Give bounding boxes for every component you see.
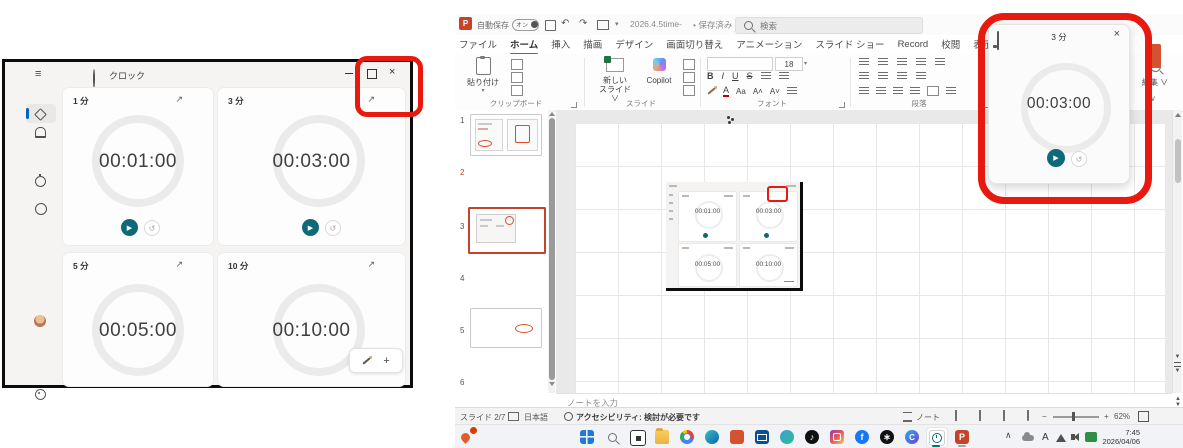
mini-sidebar-mark <box>669 202 673 204</box>
mini-card-label <box>682 195 689 197</box>
timer-time: 00:01:00 <box>63 151 213 173</box>
thumb-line <box>480 225 488 227</box>
timer-card-1min[interactable]: 1 分 ↗ 00:01:00 ▶ ↺ <box>62 87 214 246</box>
save-icon[interactable] <box>545 20 556 31</box>
add-table-button[interactable] <box>927 86 939 96</box>
mini-timer-time: 00:03:00 <box>740 208 797 215</box>
clock-app-taskbar-icon[interactable] <box>929 430 945 446</box>
app-icon[interactable] <box>780 430 794 444</box>
canvas-scroll-up-arrow[interactable] <box>1175 113 1181 117</box>
tray-show-hidden-icon[interactable]: ∧ <box>1005 430 1012 441</box>
maximize-button[interactable] <box>367 69 377 79</box>
thumb2-mini-window <box>476 214 516 243</box>
edit-timers-button[interactable] <box>363 357 371 364</box>
bullets-button[interactable] <box>859 58 869 66</box>
slide-indicator[interactable]: スライド 2/7 <box>460 412 505 423</box>
justify-button[interactable] <box>910 87 920 95</box>
mini-card-icons <box>724 247 733 249</box>
mini-ring <box>695 201 723 229</box>
thumb1-image-right <box>507 119 538 151</box>
task-view-icon[interactable] <box>630 430 646 446</box>
canva-glyph: C <box>909 433 915 442</box>
section-button[interactable] <box>683 85 695 96</box>
new-slide-label-top: 新しい <box>595 76 635 85</box>
timer-edit-bar: + <box>349 348 403 373</box>
font-size-box[interactable]: 18 <box>775 57 803 71</box>
powerpoint-glyph: P <box>959 432 965 442</box>
display-settings-icon[interactable] <box>508 412 519 421</box>
clear-formatting-button[interactable] <box>787 87 797 95</box>
mini-edit-bar <box>784 281 794 283</box>
onedrive-cloud-icon[interactable] <box>1022 435 1034 441</box>
taskbar-search-icon[interactable] <box>605 430 619 444</box>
search-icon <box>744 21 753 30</box>
view-reading-button[interactable] <box>1003 410 1005 421</box>
alarm-nav-icon[interactable] <box>35 127 46 138</box>
reset-timer-button[interactable]: ↺ <box>325 220 341 236</box>
start-timer-button[interactable]: ▶ <box>302 219 319 236</box>
paste-button[interactable]: 貼り付け ▾ <box>463 57 503 97</box>
columns-button[interactable] <box>859 72 869 80</box>
start-button[interactable] <box>580 430 594 444</box>
edge-icon[interactable] <box>705 430 719 444</box>
tiktok-icon[interactable]: ♪ <box>805 430 819 444</box>
tray-time: 7:45 <box>1100 428 1140 437</box>
nav-menu-icon[interactable]: ≡ <box>35 68 41 80</box>
powerpoint-logo-icon: P <box>459 17 472 30</box>
zoom-slider-thumb[interactable] <box>1072 412 1075 421</box>
thumbnail-scrollbar-thumb[interactable] <box>549 118 555 380</box>
scroll-down-arrow[interactable] <box>549 382 555 386</box>
group-label-font: フォント <box>701 98 843 109</box>
timer-time: 00:03:00 <box>218 151 405 173</box>
slide-number-6: 6 <box>460 378 464 387</box>
align-left-button[interactable] <box>859 87 869 95</box>
pip-close-button[interactable]: × <box>1114 28 1120 40</box>
tray-clock[interactable]: 7:45 2026/04/06 <box>1100 428 1140 446</box>
paste-label: 貼り付け <box>463 78 503 87</box>
mini-timer-time: 00:10:00 <box>740 261 797 268</box>
indent-decrease-button[interactable] <box>897 58 907 66</box>
pip-timer-time: 00:03:00 <box>989 95 1129 113</box>
timer-label: 5 分 <box>73 260 89 272</box>
zoom-in-button[interactable]: + <box>1104 412 1109 421</box>
mini-ring <box>756 201 784 229</box>
copilot-label: Copilot <box>641 76 677 85</box>
mini-titlebar-mark <box>669 185 677 187</box>
indent-increase-button[interactable] <box>916 58 926 66</box>
wifi-icon[interactable] <box>1056 434 1066 442</box>
slide-thumbnail-3[interactable] <box>470 308 542 348</box>
font-size-value: 18 <box>785 60 794 69</box>
mini-timer-card-3: 00:05:00 <box>678 243 737 287</box>
clock-app-window: ≡ クロック × 1 分 ↗ 00:01:00 ▶ ↺ 3 分 ↗ 00:03:… <box>2 59 413 388</box>
align-right-button[interactable] <box>893 87 903 95</box>
grow-font-button[interactable]: A˄ <box>753 87 763 96</box>
tab-home-label: ホーム <box>510 40 538 51</box>
tab-draw[interactable]: 描画 <box>583 37 602 51</box>
view-slide-sorter-button[interactable] <box>979 410 981 421</box>
reset-timer-button[interactable]: ↺ <box>144 220 160 236</box>
thumbnail-scrollbar[interactable] <box>548 110 555 393</box>
align-text-button[interactable] <box>897 72 907 80</box>
notes-toggle-icon[interactable] <box>903 412 912 422</box>
focus-sessions-nav-icon[interactable] <box>35 203 47 215</box>
timer-label: 3 分 <box>228 95 244 107</box>
cut-button[interactable] <box>511 59 523 70</box>
embedded-clock-screenshot[interactable]: 00:01:00 00:03:00 00:05:00 00:10:00 <box>666 182 803 291</box>
volume-icon[interactable] <box>1071 434 1075 440</box>
font-style-row: B I U S <box>707 71 789 81</box>
mini-card-icons <box>724 195 733 197</box>
mini-ring <box>756 254 784 282</box>
notification-badge <box>470 427 477 434</box>
paste-dropdown-icon: ▾ <box>463 87 503 94</box>
timer-time: 00:10:00 <box>218 320 405 342</box>
pip-timer-label: 3 分 <box>989 31 1129 43</box>
search-box[interactable]: 検索 <box>735 17 923 34</box>
tray-date: 2026/04/06 <box>1100 437 1140 446</box>
thumb-line <box>478 123 492 125</box>
split-handle-icon[interactable] <box>1174 362 1181 367</box>
ime-mode-icon[interactable]: A <box>1042 432 1049 443</box>
search-placeholder: 検索 <box>760 20 777 32</box>
clock-window-title: クロック <box>109 69 145 82</box>
tab-record[interactable]: Record <box>898 39 929 50</box>
mini-ring <box>695 254 723 282</box>
slide-number-1: 1 <box>460 116 464 125</box>
paragraph-row-2 <box>859 72 926 80</box>
chatgpt-glyph: ∗ <box>883 432 891 443</box>
battery-status-icon[interactable] <box>1085 432 1097 442</box>
canvas-scrollbar[interactable]: ▼ ▼ <box>1172 110 1182 393</box>
slide-object-marker-icon <box>727 116 730 119</box>
mini-card-label <box>682 247 689 249</box>
widgets-weather-icon[interactable] <box>461 430 474 443</box>
slide-number-3: 3 <box>460 222 464 231</box>
timer-time: 00:05:00 <box>63 320 213 342</box>
align-center-button[interactable] <box>876 87 886 95</box>
tab-design[interactable]: デザイン <box>615 37 653 51</box>
paste-icon <box>476 57 491 75</box>
notes-pane[interactable]: ノートを入力 <box>556 393 1172 408</box>
thumb-line <box>478 128 488 130</box>
chatgpt-icon[interactable]: ∗ <box>880 430 894 444</box>
slideshow-icon[interactable] <box>597 20 609 30</box>
autosave-toggle-knob <box>531 21 538 28</box>
pin-shape <box>459 431 472 444</box>
thumb-line <box>496 225 504 227</box>
share-button-fragment[interactable] <box>1150 44 1161 68</box>
thumb-line <box>480 219 492 221</box>
copilot-icon <box>653 58 666 71</box>
collapse-ribbon-icon[interactable]: ∨ <box>1150 94 1156 103</box>
slide-thumbnail-1[interactable] <box>470 114 542 156</box>
tiktok-glyph: ♪ <box>810 432 815 442</box>
minimize-button[interactable] <box>345 73 353 74</box>
expand-timer-icon[interactable]: ↗ <box>175 95 183 104</box>
mini-card-label <box>743 195 750 197</box>
ppt-tab-row: ファイル ホーム 挿入 描画 デザイン 画面切り替え アニメーション スライド … <box>459 36 1034 52</box>
mini-timer-time: 00:05:00 <box>679 261 736 268</box>
mini-window-controls-mark <box>786 185 796 187</box>
expand-timer-icon[interactable]: ↗ <box>367 95 375 104</box>
italic-button[interactable]: I <box>722 71 725 81</box>
tab-slideshow[interactable]: スライド ショー <box>815 37 884 51</box>
clock-app-icon <box>93 69 95 88</box>
undo-icon[interactable]: ↶ <box>561 18 569 29</box>
highlight-button[interactable] <box>707 87 715 94</box>
facebook-glyph: f <box>861 432 864 442</box>
timer-card-5min[interactable]: 5 分 ↗ 00:05:00 <box>62 252 214 387</box>
font-size-dropdown-icon[interactable]: ▾ <box>804 60 807 67</box>
instagram-icon[interactable] <box>830 430 844 444</box>
convert-smartart-button[interactable] <box>916 72 926 80</box>
timer-label: 10 分 <box>228 260 248 272</box>
toolbar-dropdown-icon[interactable]: ▾ <box>615 20 619 28</box>
collapse-arrow-icon[interactable]: ▼ <box>1173 354 1182 361</box>
strikethrough-button[interactable]: S <box>747 71 753 81</box>
mini-timer-time: 00:01:00 <box>679 208 736 215</box>
format-painter-button[interactable] <box>511 85 523 96</box>
group-label-clipboard: クリップボード <box>455 98 577 109</box>
tab-review[interactable]: 校閲 <box>941 37 960 51</box>
powerpoint-taskbar-icon[interactable]: P <box>955 430 969 444</box>
font-color-row: A Aa A˄ A˅ <box>707 85 797 97</box>
mini-timer-card-4: 00:10:00 <box>739 243 798 287</box>
mini-play-icon <box>764 233 769 238</box>
paragraph-row-3 <box>859 86 956 96</box>
line-spacing-button[interactable] <box>935 58 945 66</box>
outlook-icon[interactable] <box>730 430 744 444</box>
thumb2-red-circle <box>505 216 514 225</box>
canvas-nav-cluster: ▼ ▼ <box>1173 354 1182 375</box>
new-slide-icon <box>606 58 624 72</box>
view-slideshow-button[interactable] <box>1027 410 1029 421</box>
slide-number-2: 2 <box>460 168 464 177</box>
copilot-button[interactable]: Copilot <box>641 58 677 85</box>
document-title: 2026.4.5time- <box>630 19 682 29</box>
powerpoint-logo-letter: P <box>463 19 468 28</box>
thumb1-red-oval <box>478 140 492 147</box>
text-vertical-button[interactable] <box>946 87 956 95</box>
close-button[interactable]: × <box>389 66 395 78</box>
view-normal-button[interactable] <box>955 410 957 421</box>
zoom-out-button[interactable]: − <box>1042 412 1047 421</box>
slide-number-5: 5 <box>460 326 464 335</box>
group-label-paragraph: 段落 <box>851 98 987 109</box>
scroll-up-arrow[interactable] <box>549 112 555 116</box>
tab-file[interactable]: ファイル <box>459 37 497 51</box>
accessibility-status[interactable]: アクセシビリティ: 検討が必要です <box>576 412 700 423</box>
pip-timer-window: 3 分 × 00:03:00 ▶ ↺ <box>988 24 1130 184</box>
expand-timer-icon[interactable]: ↗ <box>367 260 375 269</box>
account-avatar[interactable] <box>34 315 46 327</box>
slide-number-4: 4 <box>460 274 464 283</box>
reset-slide-button[interactable] <box>683 72 695 83</box>
clipboard-dialog-launcher[interactable] <box>571 102 577 108</box>
new-slide-button[interactable]: 新しい スライド ∨ <box>595 58 635 103</box>
tab-animations[interactable]: アニメーション <box>736 37 802 51</box>
windows-taskbar: ♪ f ∗ C P ∧ A 7:45 2026/04/06 <box>455 424 1183 448</box>
character-spacing-button[interactable] <box>779 72 789 80</box>
mini-timer-card-2: 00:03:00 <box>739 191 798 242</box>
tab-insert[interactable]: 挿入 <box>551 37 570 51</box>
numbering-button[interactable] <box>878 58 888 66</box>
zoom-percentage[interactable]: 62% <box>1114 412 1130 421</box>
accessibility-icon <box>564 412 573 421</box>
autosave-state: オン <box>516 23 528 29</box>
file-explorer-icon[interactable] <box>655 430 669 444</box>
mini-timer-card-1: 00:01:00 <box>678 191 737 242</box>
mail-icon[interactable] <box>755 430 769 444</box>
screenshot-root: { "glyphs": { "play": "▶", "reset": "↺",… <box>0 0 1183 447</box>
facebook-icon[interactable]: f <box>855 430 869 444</box>
text-direction-button[interactable] <box>878 72 888 80</box>
fit-to-window-icon[interactable] <box>1138 411 1149 422</box>
redo-icon[interactable]: ↷ <box>579 18 587 29</box>
stopwatch-nav-icon[interactable] <box>35 176 46 187</box>
next-slide-icon[interactable]: ▼ <box>1173 368 1182 375</box>
paragraph-row-1 <box>859 58 945 66</box>
mini-sidebar-mark <box>669 218 673 220</box>
mini-card-label <box>743 247 750 249</box>
layout-button[interactable] <box>683 59 695 70</box>
autosave-label: 自動保存 <box>477 20 509 31</box>
mini-play-icon <box>703 233 708 238</box>
change-case-button[interactable]: Aa <box>736 87 746 96</box>
bold-button[interactable]: B <box>707 71 714 81</box>
slide-thumbnail-2-selected[interactable] <box>468 207 546 254</box>
mini-card-icons <box>785 247 794 249</box>
copy-button[interactable] <box>511 72 523 83</box>
font-color-button[interactable]: A <box>723 85 729 97</box>
pip-reset-button[interactable]: ↺ <box>1071 151 1087 167</box>
slide-thumbnail-panel: 1 2 3 4 5 <box>455 110 548 393</box>
mini-sidebar-mark <box>669 194 673 196</box>
thumb1-image-left <box>475 119 503 151</box>
canvas-scrollbar-thumb[interactable] <box>1175 139 1181 183</box>
shrink-font-button[interactable]: A˅ <box>770 87 780 96</box>
expand-timer-icon[interactable]: ↗ <box>175 260 183 269</box>
thumb-red-oval <box>515 324 533 333</box>
editing-label: 編集 ∨ <box>1137 78 1173 87</box>
tab-transitions[interactable]: 画面切り替え <box>666 37 723 51</box>
underline-button[interactable]: U <box>732 71 739 81</box>
font-name-box[interactable] <box>707 57 773 71</box>
canva-icon[interactable]: C <box>905 430 919 444</box>
language-indicator[interactable]: 日本語 <box>524 412 548 423</box>
zoom-slider-track[interactable] <box>1053 416 1099 418</box>
font-dialog-launcher[interactable] <box>839 102 845 108</box>
chrome-icon[interactable] <box>680 430 694 444</box>
mini-sidebar-mark <box>669 210 673 212</box>
start-timer-button[interactable]: ▶ <box>121 219 138 236</box>
timer-label: 1 分 <box>73 95 89 107</box>
text-shadow-button[interactable] <box>761 72 771 80</box>
timer-card-3min[interactable]: 3 分 ↗ 00:03:00 ▶ ↺ <box>217 87 406 246</box>
pip-start-button[interactable]: ▶ <box>1047 149 1065 167</box>
ppt-statusbar: スライド 2/7 日本語 アクセシビリティ: 検討が必要です ノート − + 6… <box>455 407 1183 425</box>
add-timer-button[interactable]: + <box>383 355 389 367</box>
notes-toggle-label[interactable]: ノート <box>916 412 940 423</box>
settings-gear-icon[interactable] <box>35 389 46 400</box>
group-label-slides: スライド <box>585 98 697 109</box>
thumb1-red-box <box>515 125 530 143</box>
timer-nav-accent-bar <box>26 108 29 119</box>
tab-home[interactable]: ホーム <box>510 37 538 51</box>
